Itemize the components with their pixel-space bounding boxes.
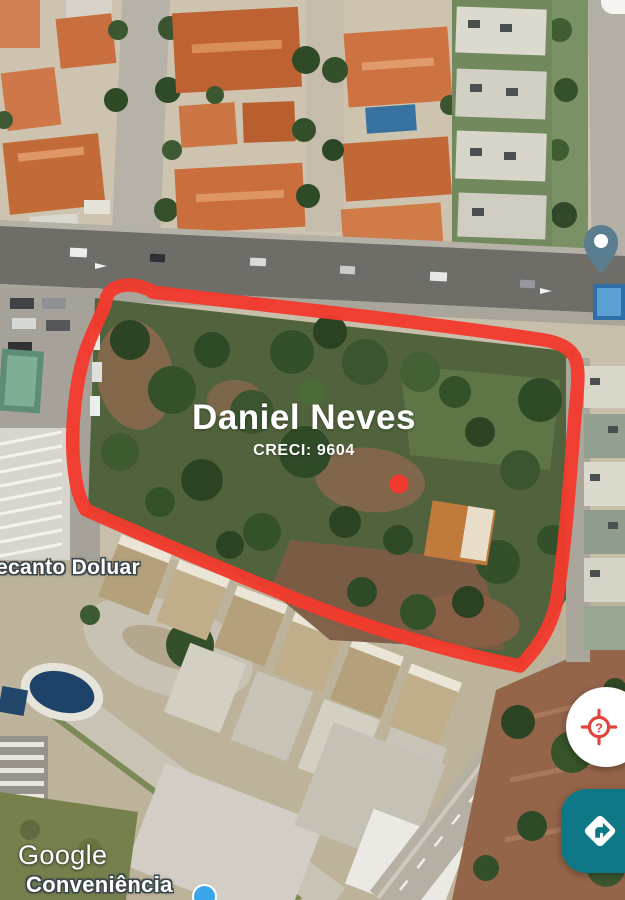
directions-button[interactable] [561,789,625,873]
directions-icon [577,808,623,854]
svg-text:?: ? [595,720,603,735]
maps-app-screen: ecanto Doluar Google Conveniência Daniel… [0,0,625,900]
location-question-icon: ? [578,706,620,748]
lot-dot-annotation [390,475,409,494]
poi-label: Conveniência [26,872,173,898]
neighborhood-label: ecanto Doluar [0,556,140,580]
lot-shed [424,500,496,565]
google-watermark: Google [18,840,107,871]
satellite-map[interactable] [0,0,625,900]
